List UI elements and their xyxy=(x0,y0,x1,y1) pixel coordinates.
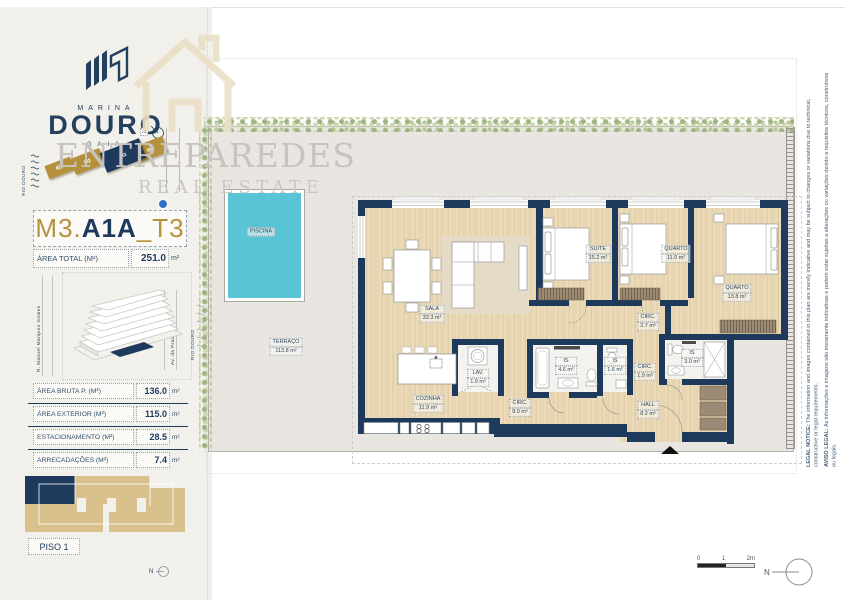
legal-en: LEGAL NOTICE: The information and images… xyxy=(806,72,821,467)
table-separator xyxy=(28,449,188,450)
legal-pt: AVISO LEGAL: As informações e imagens sã… xyxy=(824,72,839,467)
vegetation-top xyxy=(204,117,794,132)
room-label-quarto-2: QUARTO13.8 m² xyxy=(722,284,751,302)
table-row: ESTACIONAMENTO (M²) 28.5 m² xyxy=(33,429,185,445)
sidebar-compass: N xyxy=(148,564,170,579)
unit-code-main: A1A xyxy=(82,213,137,244)
river-waves-icon xyxy=(29,152,41,194)
pool xyxy=(225,190,304,301)
room-label-hall: HALL8.2 m² xyxy=(637,401,659,419)
room-label-terraco: TERRAÇO 113.8 m² xyxy=(270,338,303,356)
site-road-line xyxy=(179,128,180,192)
window-band xyxy=(358,197,788,208)
unit-code-suffix: _T3 xyxy=(137,213,185,244)
room-label-is-30: IS3.0 m² xyxy=(681,349,703,367)
room-label-is-16: IS1.6 m² xyxy=(604,357,626,375)
tv-sideboard xyxy=(519,246,527,290)
building-axon-image xyxy=(66,276,188,376)
site-road-line xyxy=(166,128,167,192)
site-river-label: RIO DOURO xyxy=(21,150,26,196)
brand-main: DOURO xyxy=(0,112,212,139)
room-label-circ-19: CIRC.1.9 m² xyxy=(634,363,656,381)
room-label-suite: SUITE15.2 m² xyxy=(586,245,611,263)
washer xyxy=(468,347,487,365)
legal-disclaimer: LEGAL NOTICE: The information and images… xyxy=(806,72,839,467)
bed-suite xyxy=(543,218,589,290)
side-window xyxy=(358,216,365,258)
area-total-unit: m² xyxy=(171,249,185,268)
scale-bar-light xyxy=(726,564,754,567)
marker-dot xyxy=(158,199,168,209)
floor-plan-drawing xyxy=(352,196,800,462)
scale-bar-dark xyxy=(698,564,726,567)
unit-code-prefix: M3. xyxy=(35,213,81,244)
brand-logo-icon xyxy=(78,46,134,98)
floor-plan: SALA33.3 m² COZINHA11.9 m² LAV.1.9 m² IS… xyxy=(352,196,800,462)
street-line xyxy=(52,276,53,376)
floor-label: PISO 1 xyxy=(28,538,80,555)
brand-logo: MARINA DOURO GAIA xyxy=(0,46,212,148)
room-label-quarto-1: QUARTO11.0 m² xyxy=(661,245,690,263)
table-row: ÁREA BRUTA P. (M²) 136.0 m² xyxy=(33,383,185,399)
vegetation-left xyxy=(199,126,212,452)
room-label-piscina: PISCINA xyxy=(247,227,275,236)
area-total-row: ÁREA TOTAL (M²) 251.0 m² xyxy=(33,249,185,268)
table-separator xyxy=(28,403,188,404)
main-compass: N xyxy=(762,556,814,593)
brand-sub: GAIA xyxy=(0,142,212,148)
room-label-lav: LAV.1.9 m² xyxy=(467,369,489,387)
room-label-sala: SALA33.3 m² xyxy=(420,305,445,323)
key-plan xyxy=(25,476,190,534)
scale-bar: 0 1 2m xyxy=(697,556,759,568)
bed-quarto-1 xyxy=(620,214,666,284)
room-label-circ-27: CIRC.2.7 m² xyxy=(637,313,659,331)
table-separator xyxy=(28,426,188,427)
area-total-label: ÁREA TOTAL (M²) xyxy=(33,249,129,268)
street-left-label: R. Manuel Marques Gomes xyxy=(36,280,41,372)
room-label-is-46: IS4.6 m² xyxy=(555,357,577,375)
unit-code: M3.A1A_T3 xyxy=(33,210,187,247)
main-compass-icon: N xyxy=(762,556,814,588)
area-total-value: 251.0 xyxy=(131,249,169,268)
entrance-arrow-icon xyxy=(661,446,679,454)
svg-text:N: N xyxy=(764,568,770,577)
table-row: ÁREA EXTERIOR (M²) 115.0 m² xyxy=(33,406,185,422)
hall-storage xyxy=(700,386,726,430)
street-line xyxy=(42,276,43,376)
river-right-label: RIO DOURO xyxy=(190,300,195,360)
sidebar-compass-icon xyxy=(155,564,170,579)
table-row: ARRECADAÇÕES (M²) 7.4 m² xyxy=(33,452,185,468)
room-label-circ-8: CIRC.8.0 m² xyxy=(509,399,531,417)
room-label-cozinha: COZINHA11.9 m² xyxy=(413,395,444,413)
